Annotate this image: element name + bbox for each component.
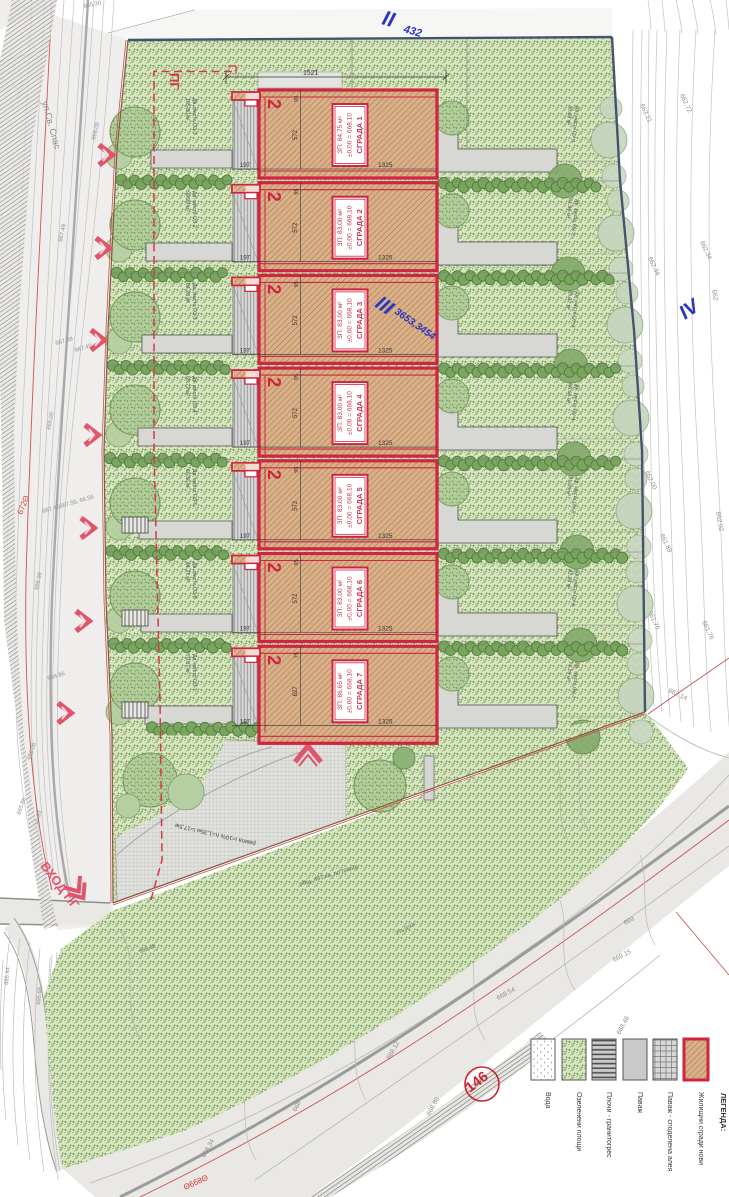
svg-text:ЗП: 83,00 м²: ЗП: 83,00 м²	[337, 486, 344, 524]
svg-text:197: 197	[240, 348, 251, 354]
svg-text:Жилищни сгради нови: Жилищни сгради нови	[697, 1092, 704, 1165]
svg-text:2: 2	[264, 470, 284, 480]
svg-text:ЗП: 86,65 м²: ЗП: 86,65 м²	[337, 672, 344, 710]
svg-text:70.37 м²: 70.37 м²	[184, 654, 190, 674]
svg-text:Плочи - гранитогрес: Плочи - гранитогрес	[605, 1092, 612, 1158]
svg-text:ПГ: ПГ	[167, 73, 182, 90]
svg-text:ЗП: 83,00 м²: ЗП: 83,00 м²	[337, 394, 344, 432]
svg-text:2: 2	[264, 655, 284, 665]
svg-text:197: 197	[240, 719, 251, 725]
svg-text:±0,00 = 668,10: ±0,00 = 668,10	[347, 113, 354, 157]
svg-text:Дв. место ОЗ-2: Дв. место ОЗ-2	[191, 191, 197, 228]
svg-text:572: 572	[293, 315, 299, 326]
svg-text:197: 197	[240, 441, 251, 447]
svg-text:СГРАДА 6: СГРАДА 6	[355, 580, 364, 617]
svg-text:ЗП: 83,00 м²: ЗП: 83,00 м²	[337, 301, 344, 339]
svg-text:±0,00 = 668,10: ±0,00 = 668,10	[347, 205, 354, 249]
svg-text:75: 75	[294, 652, 300, 658]
svg-text:1325: 1325	[378, 533, 393, 540]
svg-text:ЗП: 83,00 м²: ЗП: 83,00 м²	[337, 208, 344, 246]
svg-text:627: 627	[293, 686, 299, 697]
svg-text:2: 2	[264, 563, 284, 573]
svg-text:95: 95	[294, 189, 300, 195]
svg-text:2: 2	[264, 192, 284, 202]
svg-text:Вода: Вода	[544, 1092, 551, 1108]
svg-text:Дв. место ОЗ-1: Дв. место ОЗ-1	[191, 98, 197, 135]
svg-text:197: 197	[240, 534, 251, 540]
svg-text:572: 572	[293, 593, 299, 604]
svg-text:Дв. место ОЗ-3: Дв. место ОЗ-3	[191, 283, 197, 320]
svg-text:ЛЕГЕНДА:: ЛЕГЕНДА:	[719, 1093, 728, 1131]
svg-text:95: 95	[294, 559, 300, 565]
svg-text:СГРАДА 3: СГРАДА 3	[355, 302, 364, 339]
svg-text:105.00 м²: 105.00 м²	[184, 98, 190, 121]
svg-text:Дв. место ОЗ-4: Дв. место ОЗ-4	[191, 376, 197, 413]
svg-text:1325: 1325	[378, 718, 393, 725]
svg-text:1325: 1325	[378, 347, 393, 354]
svg-text:±0,00 = 668,10: ±0,00 = 668,10	[347, 298, 354, 342]
svg-text:СГРАДА 4: СГРАДА 4	[355, 394, 364, 432]
svg-text:64.20 м²: 64.20 м²	[184, 283, 190, 303]
svg-text:1325: 1325	[378, 162, 393, 169]
svg-text:90: 90	[294, 96, 300, 102]
svg-text:90.99 м²: 90.99 м²	[184, 191, 190, 211]
svg-text:197: 197	[240, 163, 251, 169]
svg-text:Дв. место ОЗ-5: Дв. место ОЗ-5	[191, 469, 197, 506]
svg-text:Паваж: Паваж	[636, 1092, 643, 1113]
svg-text:±0,00 = 668,10: ±0,00 = 668,10	[347, 669, 354, 713]
svg-text:±0,00 = 668,10: ±0,00 = 668,10	[347, 576, 354, 620]
svg-text:СГРАДА 7: СГРАДА 7	[355, 673, 364, 710]
svg-text:572: 572	[293, 500, 299, 511]
svg-text:65.72 м²: 65.72 м²	[184, 376, 190, 396]
svg-text:Дв. место ОЗ-7: Дв. место ОЗ-7	[191, 654, 197, 691]
svg-text:ЗП: 84,75 м²: ЗП: 84,75 м²	[337, 115, 344, 153]
svg-text:1325: 1325	[378, 255, 393, 262]
svg-text:ЗП: 83,00 м²: ЗП: 83,00 м²	[337, 579, 344, 617]
svg-text:95: 95	[294, 374, 300, 380]
svg-text:1325: 1325	[378, 440, 393, 447]
svg-text:572: 572	[293, 407, 299, 418]
svg-text:95: 95	[294, 467, 300, 473]
svg-text:2: 2	[264, 284, 284, 294]
svg-text:Дв. место ОЗ-6: Дв. место ОЗ-6	[191, 562, 197, 599]
svg-text:64.27 м²: 64.27 м²	[184, 562, 190, 582]
svg-text:2: 2	[264, 99, 284, 109]
svg-text:1325: 1325	[378, 626, 393, 633]
svg-text:±0,00 = 668,10: ±0,00 = 668,10	[347, 483, 354, 527]
svg-text:572: 572	[293, 129, 299, 140]
svg-text:Паваж - споделена алея: Паваж - споделена алея	[666, 1092, 673, 1172]
svg-text:СГРАДА 1: СГРАДА 1	[355, 116, 364, 154]
svg-text:2: 2	[264, 377, 284, 387]
svg-text:СГРАДА 2: СГРАДА 2	[355, 209, 364, 246]
svg-text:Озеленени площи: Озеленени площи	[575, 1092, 582, 1151]
svg-text:197: 197	[240, 256, 251, 262]
svg-text:197: 197	[240, 627, 251, 633]
svg-text:95: 95	[294, 281, 300, 287]
svg-text:СГРАДА 5: СГРАДА 5	[355, 486, 364, 524]
svg-text:1521: 1521	[303, 70, 319, 77]
svg-text:572: 572	[293, 222, 299, 233]
svg-text:±0,00 = 668,10: ±0,00 = 668,10	[347, 391, 354, 435]
svg-text:66.56 м²: 66.56 м²	[184, 469, 190, 489]
